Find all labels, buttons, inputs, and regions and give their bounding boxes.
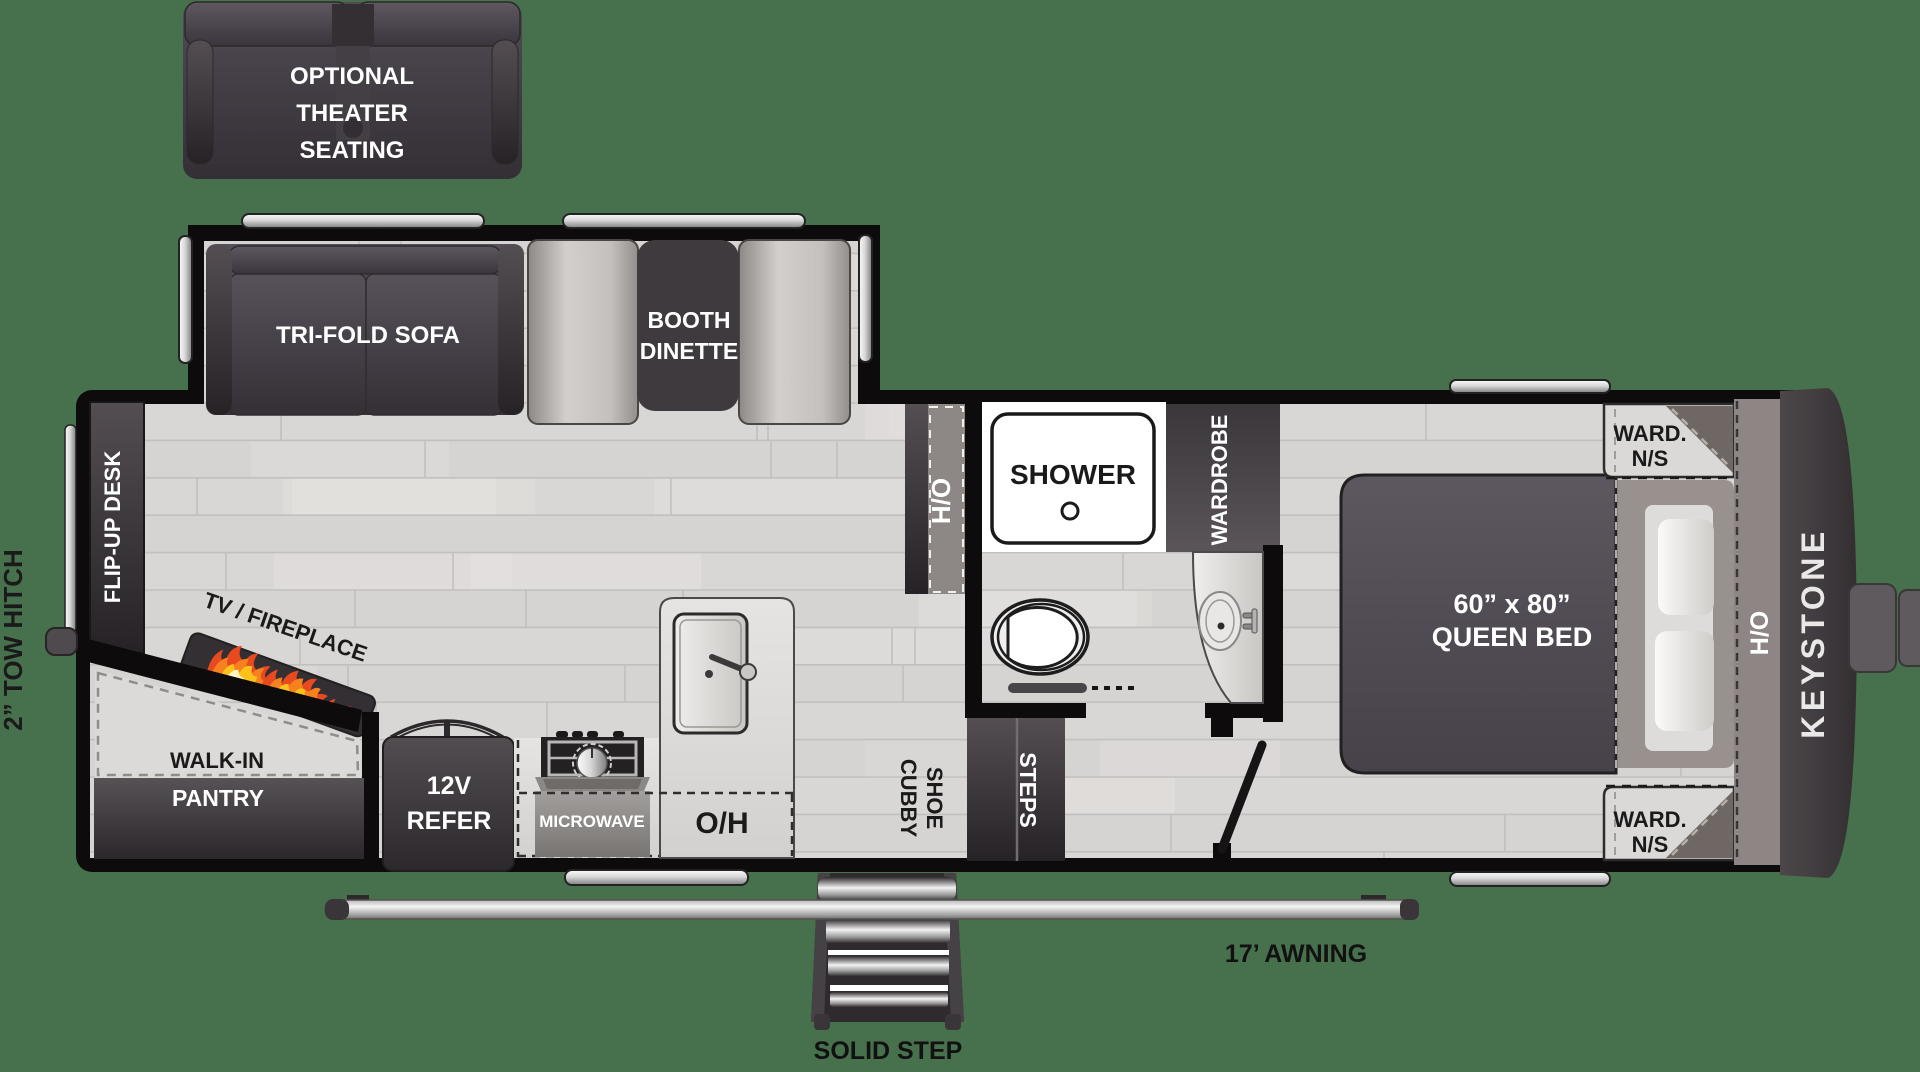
svg-text:SHOWER: SHOWER: [1010, 459, 1136, 490]
svg-text:WALK-IN: WALK-IN: [170, 748, 264, 773]
svg-text:60” x 80”: 60” x 80”: [1453, 589, 1570, 619]
svg-text:DINETTE: DINETTE: [640, 338, 738, 364]
svg-text:KEYSTONE: KEYSTONE: [1795, 527, 1831, 738]
svg-text:N/S: N/S: [1632, 832, 1669, 857]
svg-text:STEPS: STEPS: [1015, 752, 1041, 827]
svg-text:2” TOW HITCH: 2” TOW HITCH: [0, 549, 28, 731]
svg-text:H/O: H/O: [1746, 611, 1774, 655]
svg-text:SEATING: SEATING: [300, 137, 405, 164]
svg-text:O/H: O/H: [695, 807, 748, 840]
svg-text:THEATER: THEATER: [296, 100, 408, 127]
svg-text:REFER: REFER: [407, 807, 492, 835]
svg-text:SOLID STEP: SOLID STEP: [814, 1037, 963, 1065]
svg-text:FLIP-UP DESK: FLIP-UP DESK: [100, 451, 125, 604]
svg-text:WARDROBE: WARDROBE: [1207, 415, 1232, 546]
svg-text:PANTRY: PANTRY: [172, 785, 264, 811]
svg-text:TRI-FOLD SOFA: TRI-FOLD SOFA: [276, 322, 460, 349]
svg-text:17’ AWNING: 17’ AWNING: [1225, 940, 1367, 968]
svg-text:BOOTH: BOOTH: [647, 307, 730, 333]
svg-text:H/O: H/O: [926, 478, 956, 524]
svg-text:OPTIONAL: OPTIONAL: [290, 63, 414, 90]
svg-text:WARD.: WARD.: [1613, 421, 1686, 446]
svg-text:12V: 12V: [427, 772, 472, 800]
svg-text:N/S: N/S: [1632, 446, 1669, 471]
svg-text:SHOECUBBY: SHOECUBBY: [896, 759, 947, 838]
svg-text:MICROWAVE: MICROWAVE: [539, 812, 644, 831]
svg-text:QUEEN BED: QUEEN BED: [1432, 622, 1593, 652]
svg-text:WARD.: WARD.: [1613, 807, 1686, 832]
